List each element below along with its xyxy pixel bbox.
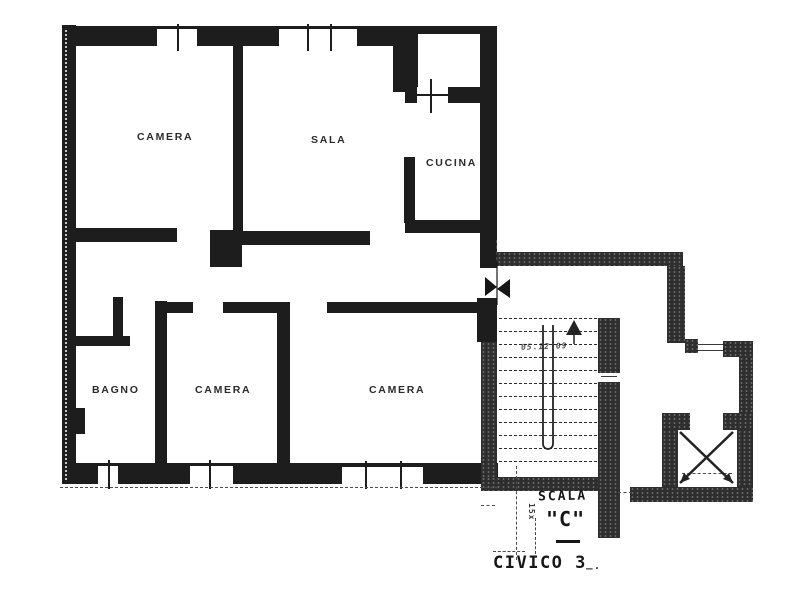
plan-symbols: [0, 0, 795, 614]
stairs-up-arrow-icon: [566, 320, 582, 344]
floor-plan: CAMERA SALA CUCINA BAGNO CAMERA CAMERA S…: [0, 0, 795, 614]
window-cross-icon: [411, 79, 453, 113]
elevator-x-icon: [680, 432, 733, 483]
survey-cross-icon: [499, 480, 508, 489]
entrance-door-icon: [485, 262, 510, 305]
stair-handrail: [543, 325, 553, 449]
